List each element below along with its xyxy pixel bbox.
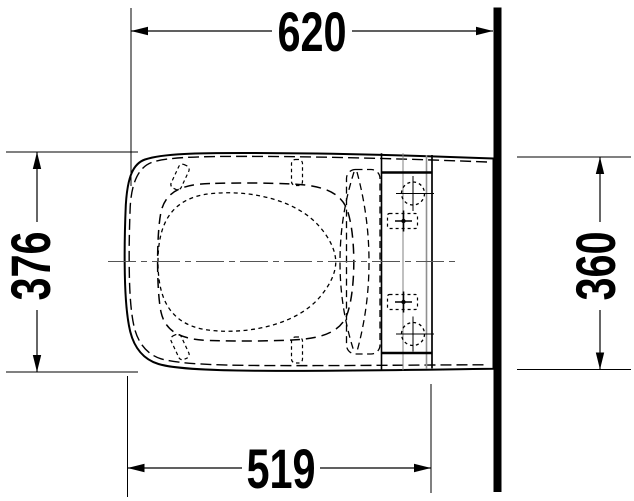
dimension-519: 519 [128,376,432,501]
dimension-360: 360 [517,157,631,370]
dimension-360-label: 360 [565,231,628,300]
toilet-top-view-drawing: 620 376 360 [0,0,634,501]
wall-line [494,8,502,493]
dimension-376-label: 376 [0,231,63,300]
dimension-519-label: 519 [246,438,315,501]
dimension-620-label: 620 [277,1,346,64]
technical-drawing-canvas: 620 376 360 [0,0,634,501]
